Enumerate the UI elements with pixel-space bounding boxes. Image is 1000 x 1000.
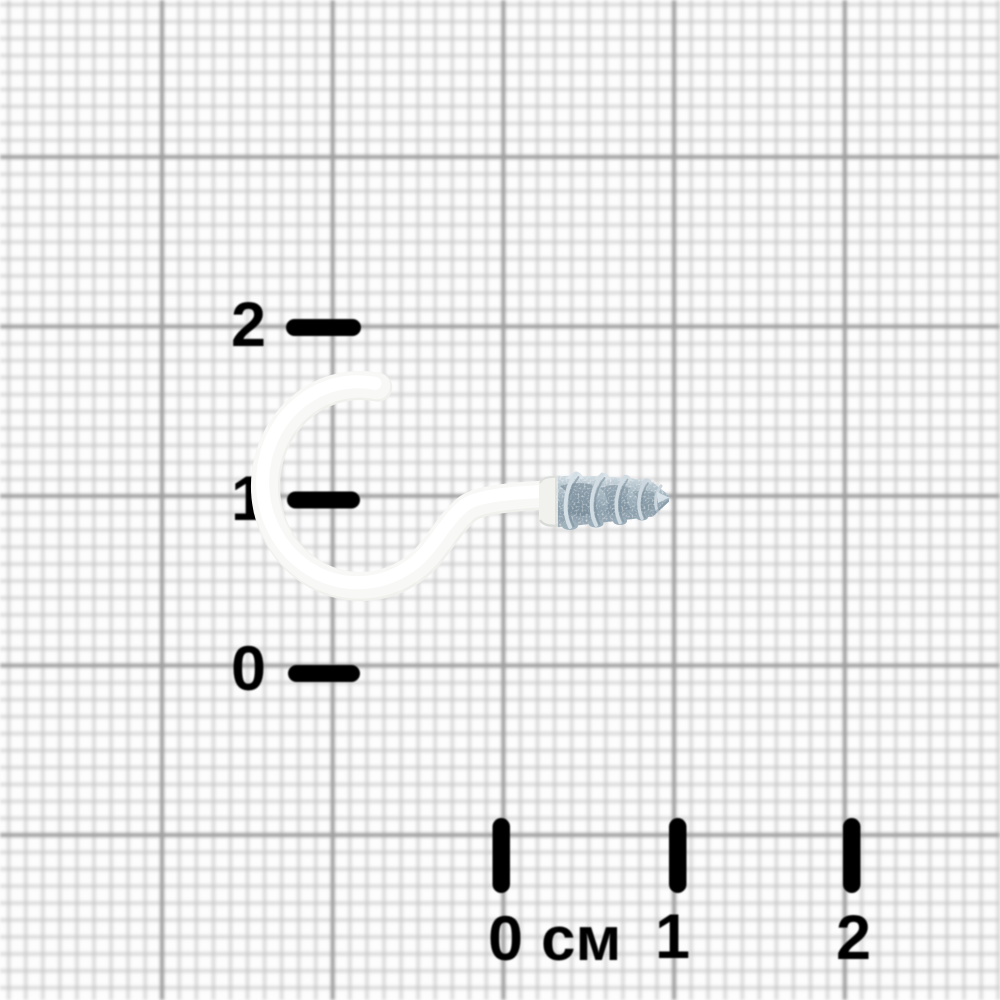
svg-text:2: 2 bbox=[231, 290, 266, 360]
svg-text:1: 1 bbox=[655, 902, 690, 972]
svg-text:см: см bbox=[541, 905, 621, 974]
svg-text:0: 0 bbox=[488, 904, 523, 974]
svg-text:2: 2 bbox=[836, 903, 871, 973]
svg-text:0: 0 bbox=[231, 634, 266, 704]
